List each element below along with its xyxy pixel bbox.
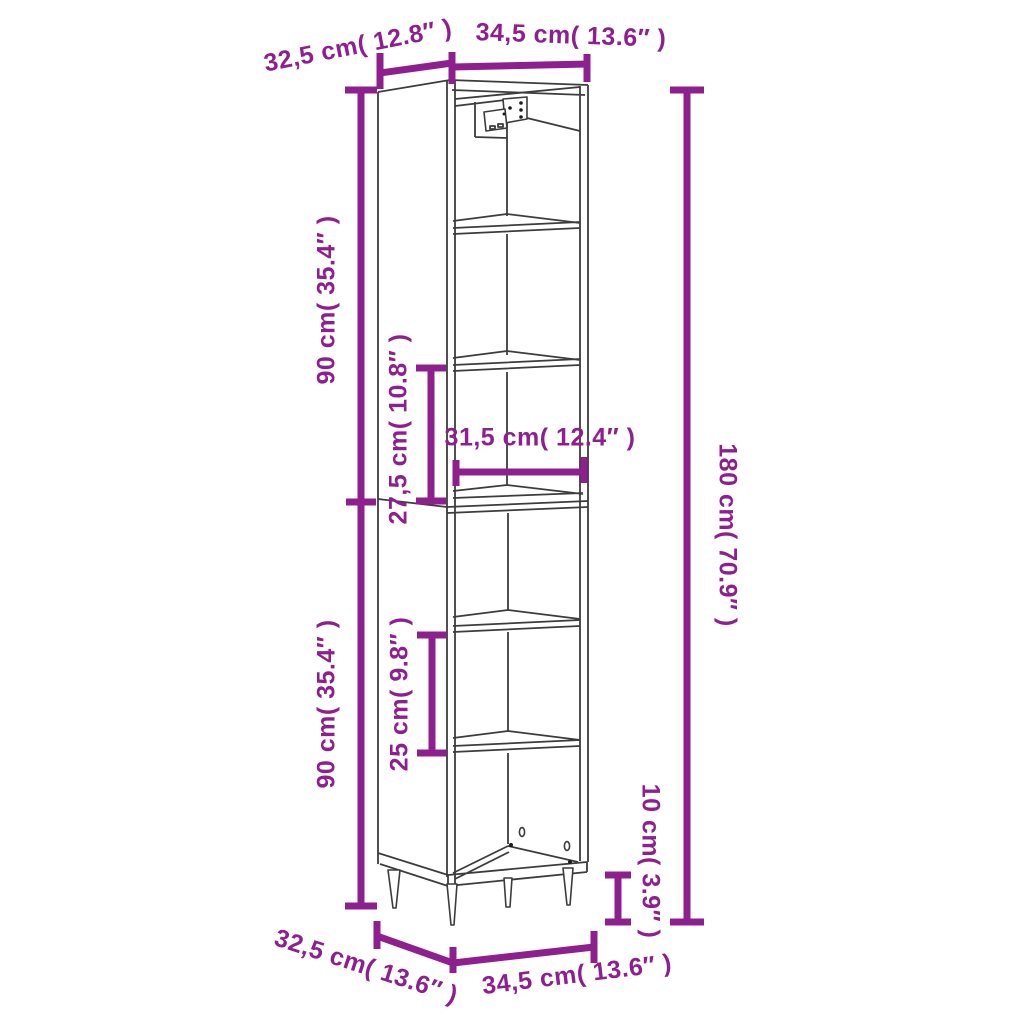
shelf (453, 731, 580, 752)
shelf (453, 351, 580, 371)
cabinet-leg (388, 870, 400, 908)
dim-label-upper-compartment: 27,5 cm( 10.8″ ) (385, 334, 414, 525)
cabinet-back-corner (507, 121, 508, 844)
cabinet-leg (563, 868, 573, 905)
dim-line-left-heights (345, 90, 377, 906)
dim-line-bottom-width (453, 931, 594, 963)
dim-line-upper-compartment (416, 368, 446, 501)
dim-label-upper-height: 90 cm( 35.4″ ) (313, 215, 342, 384)
dim-line-inner-width (456, 457, 584, 486)
screw-hole (564, 842, 569, 851)
cabinet-leg (504, 878, 512, 907)
bolt-dot (568, 860, 572, 864)
dim-line-lower-compartment (417, 635, 447, 753)
shelf (453, 214, 580, 234)
dim-label-leg-height: 10 cm( 3.9″ ) (636, 784, 665, 939)
dim-line-total-height (670, 90, 704, 922)
product-dimension-diagram: 32,5 cm( 12.8″ ) 34,5 cm( 13.6″ ) 90 cm(… (0, 0, 1024, 1024)
dim-line-leg-height (605, 875, 631, 922)
dim-line-top-depth (380, 52, 452, 89)
bolt-dot (509, 843, 513, 847)
diagram-canvas (0, 0, 1024, 1024)
screw-hole (519, 828, 524, 837)
cabinet-leg (447, 884, 457, 925)
dim-line-top-width (452, 54, 588, 82)
dim-label-lower-height: 90 cm( 35.4″ ) (313, 619, 342, 788)
shelf (453, 610, 580, 632)
dim-label-total-height: 180 cm( 70.9″ ) (713, 443, 742, 626)
dim-label-inner-width: 31,5 cm( 12.4″ ) (445, 424, 636, 453)
cabinet-bottom-panel (378, 846, 587, 886)
dim-label-lower-compartment: 25 cm( 9.8″ ) (386, 617, 415, 772)
